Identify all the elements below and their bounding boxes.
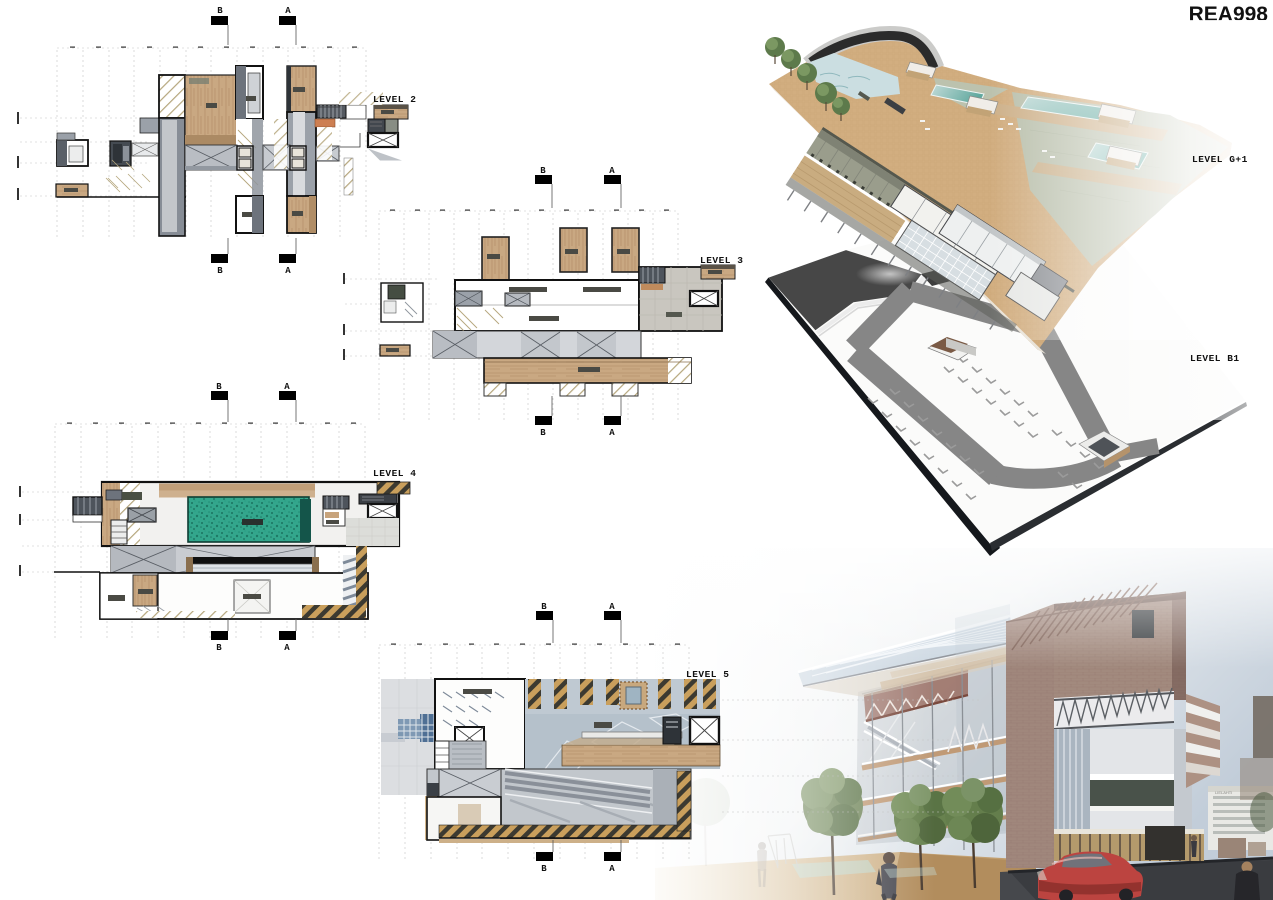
svg-text:A: A [285, 6, 291, 16]
svg-text:B: B [540, 166, 546, 176]
svg-text:B: B [216, 643, 222, 653]
svg-text:B: B [216, 382, 222, 392]
svg-text:B: B [541, 602, 547, 612]
svg-text:LEVEL 2: LEVEL 2 [373, 94, 416, 105]
svg-text:A: A [284, 643, 290, 653]
svg-text:A: A [609, 428, 615, 438]
svg-text:B: B [540, 428, 546, 438]
svg-text:B: B [217, 266, 223, 276]
svg-text:B: B [217, 6, 223, 16]
svg-text:LEVEL 3: LEVEL 3 [700, 255, 743, 266]
svg-text:A: A [285, 266, 291, 276]
svg-text:LEVEL 5: LEVEL 5 [686, 669, 729, 680]
svg-text:LIELAHTI: LIELAHTI [1215, 790, 1232, 795]
svg-text:LEVEL 4: LEVEL 4 [373, 468, 416, 479]
svg-text:A: A [609, 166, 615, 176]
svg-text:LEVEL B1: LEVEL B1 [1190, 353, 1240, 364]
svg-text:A: A [609, 864, 615, 874]
svg-text:A: A [284, 382, 290, 392]
svg-text:A: A [609, 602, 615, 612]
svg-text:B: B [541, 864, 547, 874]
svg-text:LEVEL G+1: LEVEL G+1 [1192, 154, 1248, 165]
